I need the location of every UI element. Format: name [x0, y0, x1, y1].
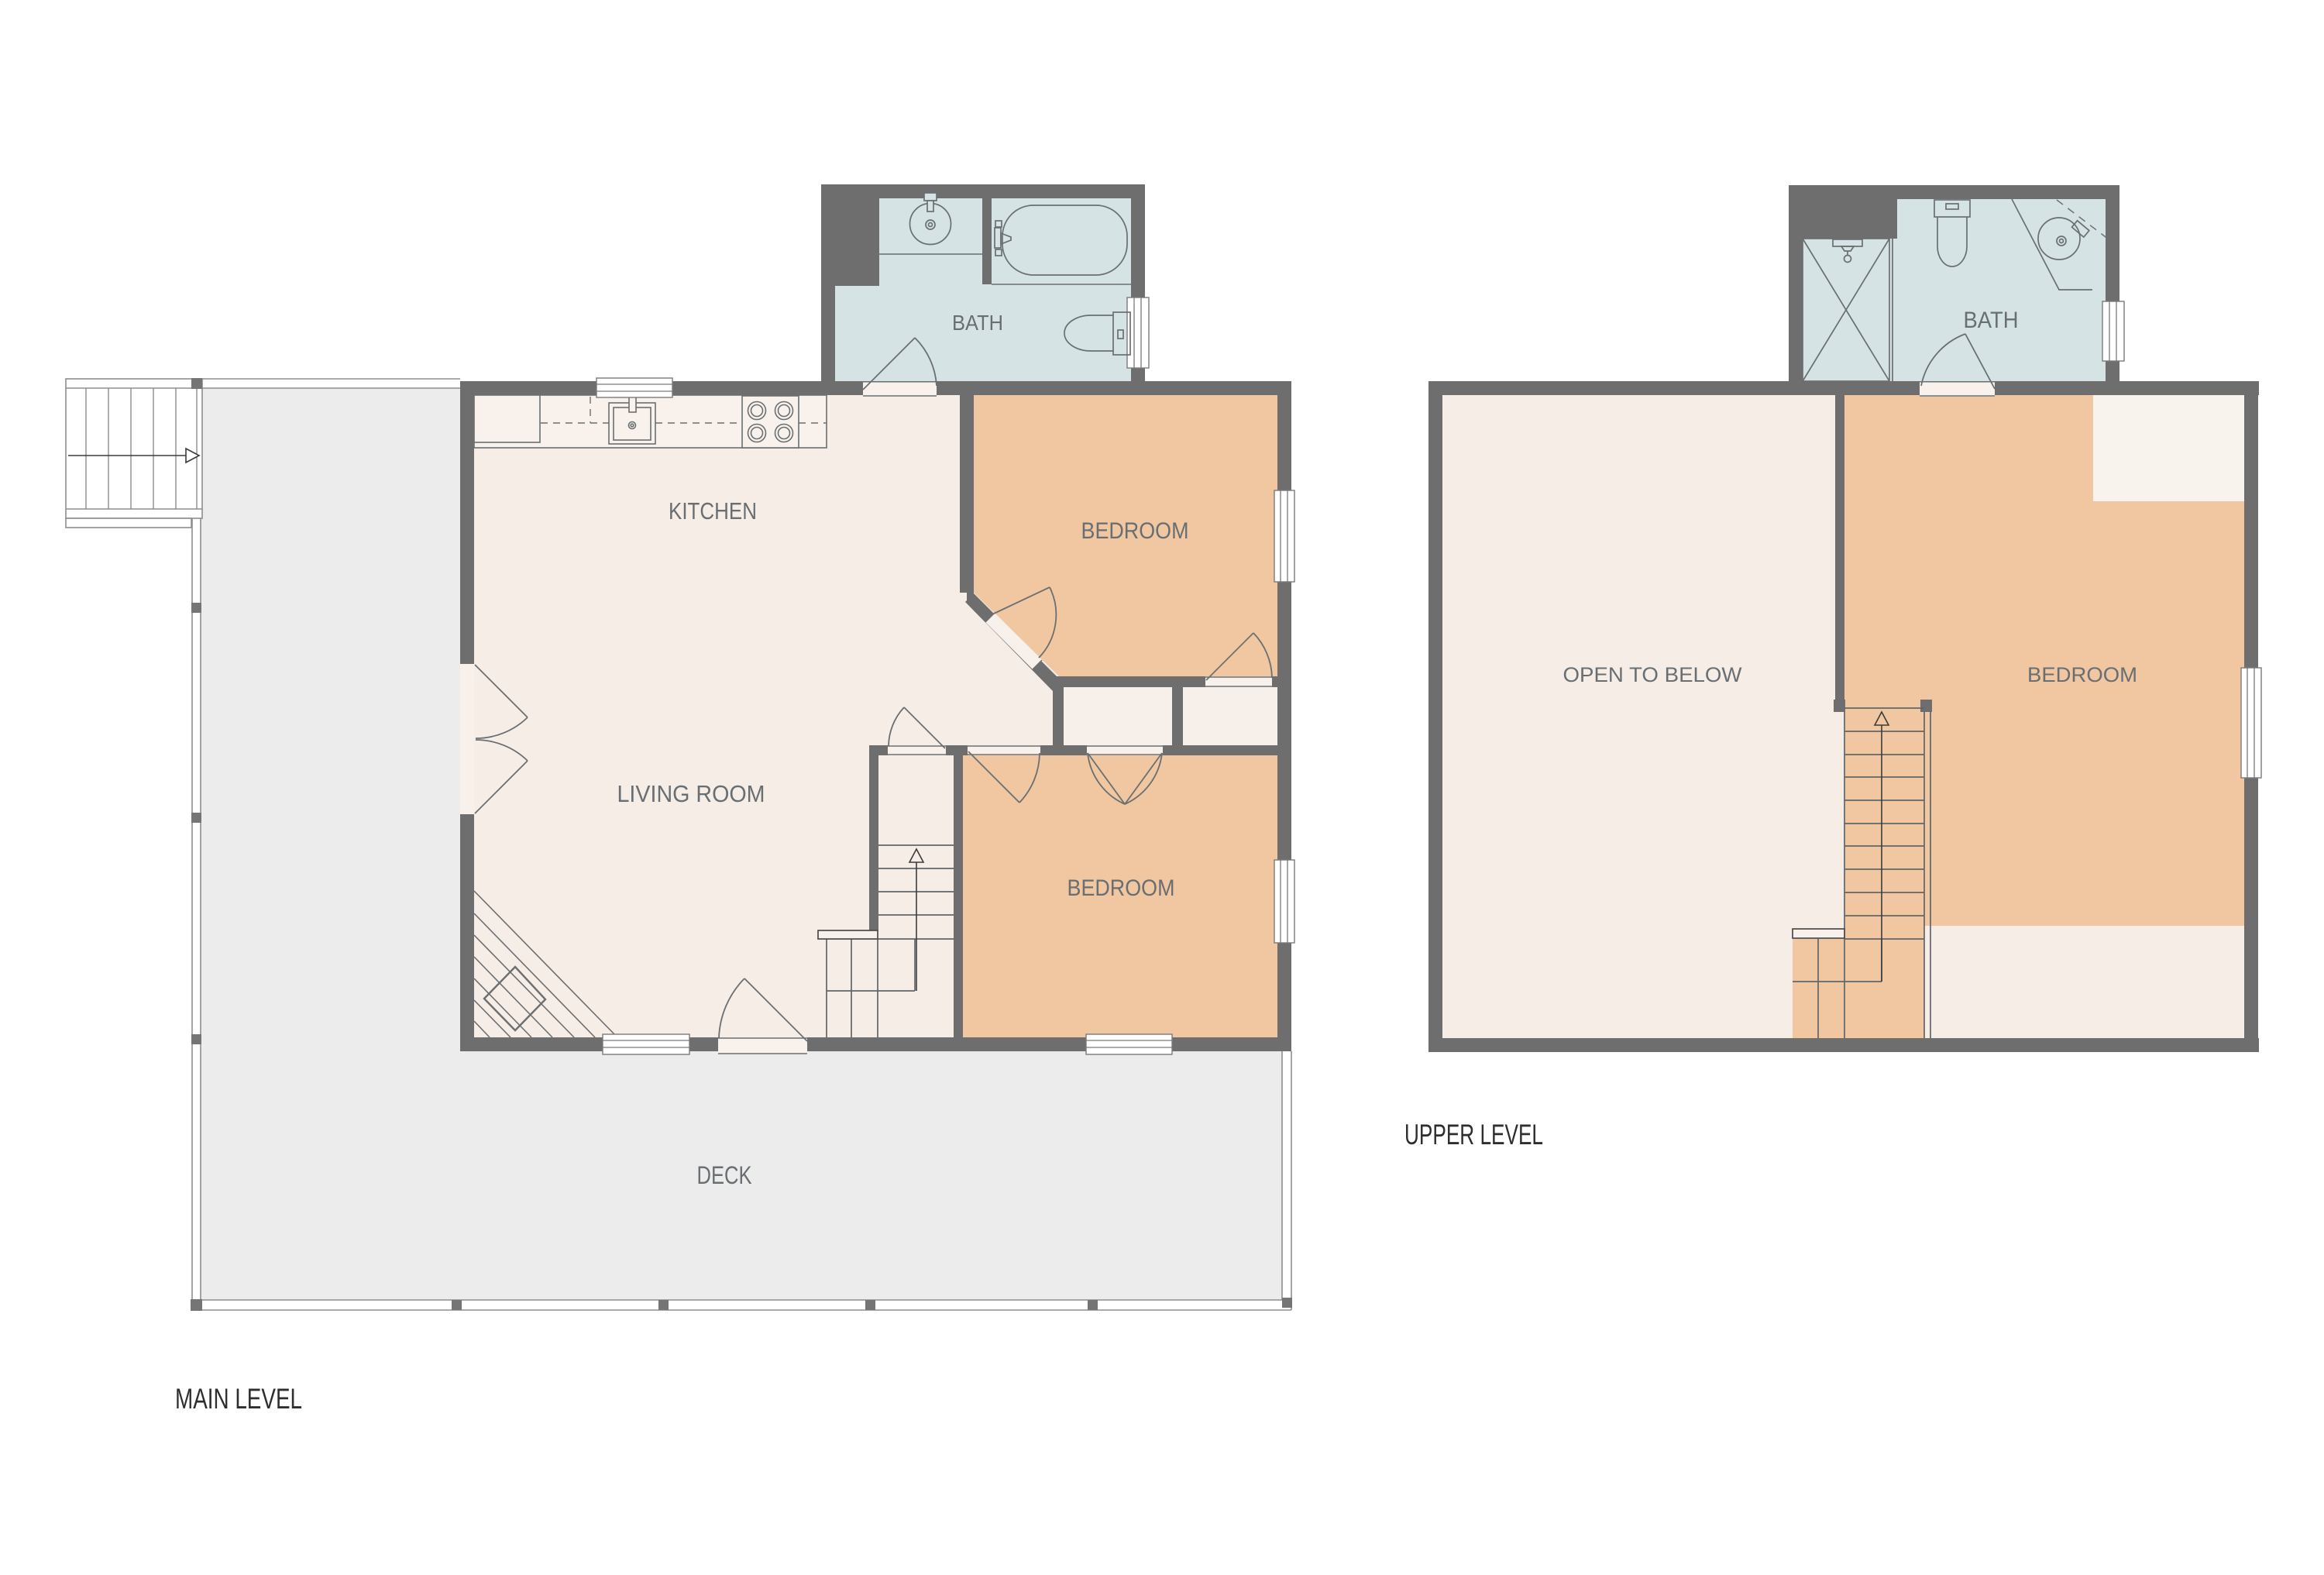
svg-text:BEDROOM: BEDROOM	[1081, 518, 1189, 544]
svg-text:KITCHEN: KITCHEN	[669, 497, 757, 524]
svg-text:BEDROOM: BEDROOM	[1067, 875, 1175, 901]
svg-text:BATH: BATH	[1964, 308, 2019, 333]
svg-text:UPPER LEVEL: UPPER LEVEL	[1404, 1119, 1543, 1150]
svg-text:BATH: BATH	[952, 311, 1003, 335]
svg-text:DECK: DECK	[697, 1161, 752, 1189]
svg-text:LIVING ROOM: LIVING ROOM	[617, 780, 765, 807]
svg-text:MAIN LEVEL: MAIN LEVEL	[175, 1383, 302, 1415]
svg-text:OPEN TO BELOW: OPEN TO BELOW	[1563, 663, 1743, 686]
svg-text:BEDROOM: BEDROOM	[2027, 663, 2137, 686]
